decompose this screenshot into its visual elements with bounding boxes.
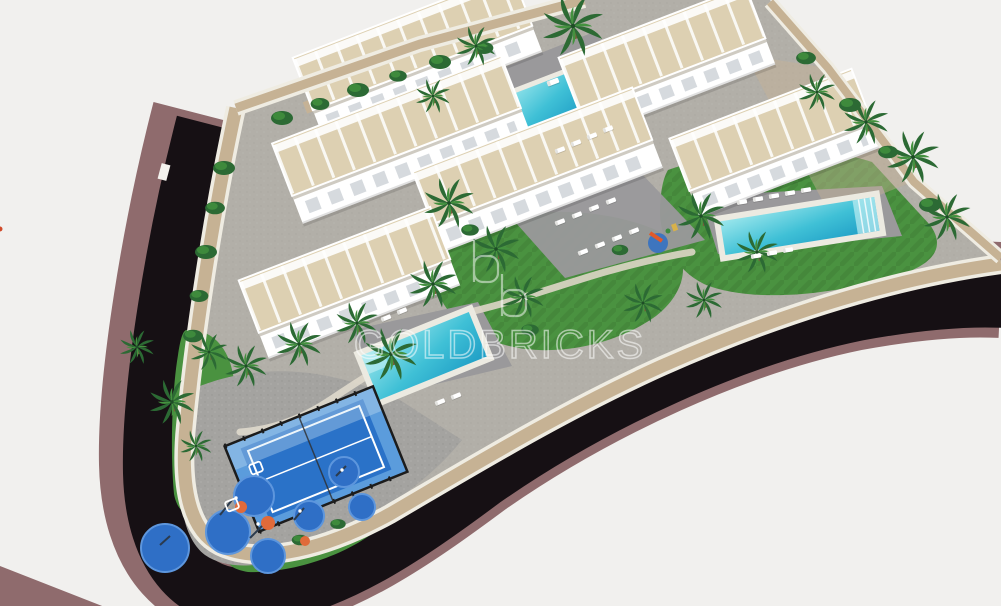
play-element (666, 229, 671, 234)
aerial-render-image: GOLDBRICKS (0, 0, 1001, 606)
bush (213, 161, 235, 175)
bush (205, 202, 225, 215)
bush (389, 70, 407, 81)
play-mat (141, 524, 189, 572)
play-mat-accent (261, 516, 275, 530)
bush (330, 519, 345, 529)
bush (429, 55, 451, 69)
play-mat (349, 494, 375, 520)
play-mat (251, 539, 285, 573)
bush (271, 111, 293, 125)
bush (311, 98, 330, 110)
watermark-text: GOLDBRICKS (354, 323, 646, 367)
bush (347, 83, 369, 97)
bush (612, 245, 629, 256)
play-mat (329, 457, 359, 487)
bush (190, 290, 209, 302)
play-mat (206, 510, 250, 554)
bush (195, 245, 217, 259)
play-mat-accent (300, 536, 310, 546)
bush (461, 224, 479, 235)
bush (796, 52, 816, 65)
site-render: GOLDBRICKS (0, 0, 1001, 606)
bush (183, 330, 203, 343)
